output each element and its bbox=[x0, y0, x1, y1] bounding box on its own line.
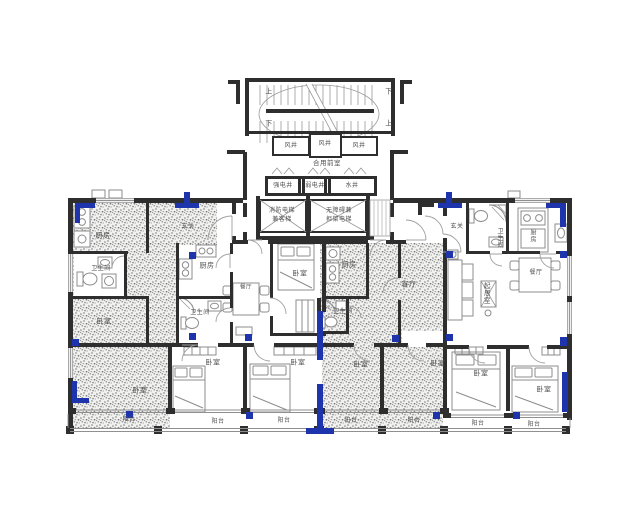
stair-down-label: 下 bbox=[385, 89, 393, 96]
label-wind-shaft-1: 风井 bbox=[284, 143, 297, 149]
label-fire-elevator-2: 兼客梯 bbox=[272, 217, 292, 223]
label-bedroom-u2a: 卧室 bbox=[293, 271, 308, 278]
label-bedroom-u4a: 卧室 bbox=[474, 371, 489, 378]
label-accessible-elevator: 无障碍兼 bbox=[326, 208, 352, 214]
label-bath-u1: 卫生间 bbox=[91, 266, 111, 272]
label-fire-elevator: 消防电梯 bbox=[269, 208, 295, 214]
label-power-shaft: 强电井 bbox=[273, 183, 293, 189]
label-wind-shaft-2: 风井 bbox=[318, 141, 331, 147]
label-shared-lobby: 合用前室 bbox=[313, 161, 341, 168]
label-living-u4: 起居室 bbox=[482, 282, 489, 305]
label-bath-u2: 卫生间 bbox=[190, 310, 210, 316]
label-dining-u2: 餐厅 bbox=[240, 285, 252, 291]
stair-down-label: 下 bbox=[265, 121, 273, 128]
label-balcony-u3a: 阳台 bbox=[344, 418, 357, 424]
label-bedroom-u4b: 卧室 bbox=[537, 387, 552, 394]
stair-up-label: 上 bbox=[385, 121, 393, 128]
label-balcony-u4b: 阳台 bbox=[527, 422, 540, 428]
label-balcony-u2b: 阳台 bbox=[211, 419, 224, 425]
label-bedroom-u2b: 卧室 bbox=[206, 360, 221, 367]
label-kitchen-u4: 厨房 bbox=[529, 229, 535, 243]
label-kitchen-u1: 厨房 bbox=[96, 233, 111, 240]
floor-plan: 上下下上风井风井风井合用前室强电井弱电井水井消防电梯兼客梯无障碍兼担架电梯厨房玄… bbox=[0, 0, 640, 510]
label-dining-u4: 餐厅 bbox=[529, 270, 542, 276]
label-wind-shaft-3: 风井 bbox=[352, 143, 365, 149]
label-kitchen-u2: 厨房 bbox=[200, 263, 215, 270]
label-stretcher-elevator: 担架电梯 bbox=[326, 217, 352, 223]
label-balcony-u2c: 阳台 bbox=[277, 418, 290, 424]
label-kitchen-u3: 厨房 bbox=[342, 262, 357, 269]
label-telecom-shaft: 弱电井 bbox=[305, 183, 325, 189]
label-bedroom-u1a: 卧室 bbox=[97, 319, 112, 326]
label-balcony-u3b: 阳台 bbox=[407, 418, 420, 424]
label-bedroom-u1b: 卧室 bbox=[133, 388, 148, 395]
label-living-u3: 客厅 bbox=[402, 282, 417, 289]
label-bedroom-u2c: 卧室 bbox=[291, 360, 306, 367]
label-bath-u4: 卫生间 bbox=[496, 228, 502, 249]
label-foyer-u4: 玄关 bbox=[450, 224, 463, 230]
label-water-shaft: 水井 bbox=[345, 183, 358, 189]
label-bath-u3: 卫生间 bbox=[333, 309, 353, 315]
label-bedroom-u3a: 卧室 bbox=[354, 362, 369, 369]
label-bedroom-u3b: 卧室 bbox=[431, 361, 446, 368]
stair-up-label: 上 bbox=[265, 89, 273, 96]
label-balcony-u4a: 阳台 bbox=[471, 421, 484, 427]
label-foyer-u1: 玄关 bbox=[181, 224, 194, 230]
label-balcony-u1: 阳台 bbox=[122, 417, 135, 423]
labels-layer: 上下下上风井风井风井合用前室强电井弱电井水井消防电梯兼客梯无障碍兼担架电梯厨房玄… bbox=[0, 0, 640, 510]
